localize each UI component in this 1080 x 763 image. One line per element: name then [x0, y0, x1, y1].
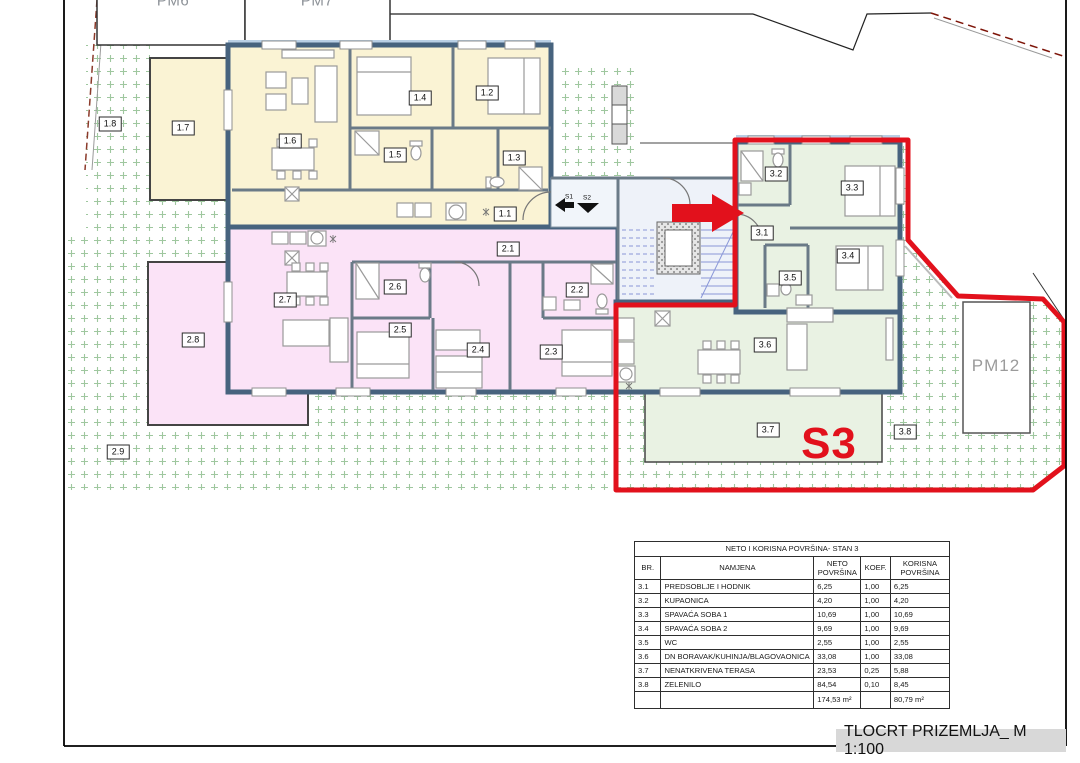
room-label-3.7: 3.7 — [757, 423, 780, 438]
room-label-1.4: 1.4 — [409, 91, 432, 106]
table-row-3.7: 3.7NENATKRIVENA TERASA23,530,255,88 — [635, 664, 950, 678]
cell-3.7-br: 3.7 — [635, 664, 661, 678]
room-label-1.7: 1.7 — [172, 121, 195, 136]
room-label-2.1: 2.1 — [497, 242, 520, 257]
cell-3.8-koef: 0,10 — [861, 678, 890, 692]
cell-3.3-korisna: 10,69 — [890, 608, 949, 622]
col-header-koef: KOEF. — [861, 557, 890, 580]
cell-3.6-neto: 33,08 — [814, 650, 861, 664]
table-row-3.3: 3.3SPAVAĆA SOBA 110,691,0010,69 — [635, 608, 950, 622]
cell-3.1-name: PREDSOBLJE I HODNIK — [661, 580, 814, 594]
cell-3.5-korisna: 2,55 — [890, 636, 949, 650]
entrance-arrow-s2-label: S2 — [583, 195, 591, 202]
parking-stalls — [97, 0, 390, 45]
cell-3.1-neto: 6,25 — [814, 580, 861, 594]
cell-3.4-korisna: 9,69 — [890, 622, 949, 636]
cell-3.6-name: DN BORAVAK/KUHINJA/BLAGOVAONICA — [661, 650, 814, 664]
room-label-2.3: 2.3 — [540, 345, 563, 360]
cell-3.8-name: ZELENILO — [661, 678, 814, 692]
cell-3.2-br: 3.2 — [635, 594, 661, 608]
planter — [612, 86, 627, 144]
cell-3.7-korisna: 5,88 — [890, 664, 949, 678]
col-header-br: BR. — [635, 557, 661, 580]
cell-3.5-br: 3.5 — [635, 636, 661, 650]
room-label-3.6: 3.6 — [754, 338, 777, 353]
col-header-neto: NETO POVRŠINA — [814, 557, 861, 580]
room-label-3.8: 3.8 — [894, 425, 917, 440]
cell-3.6-koef: 1,00 — [861, 650, 890, 664]
room-label-3.1: 3.1 — [751, 226, 774, 241]
col-header-korisna: KORISNA POVRŠINA — [890, 557, 949, 580]
col-header-namjena: NAMJENA — [661, 557, 814, 580]
cell-3.2-neto: 4,20 — [814, 594, 861, 608]
table-row-3.4: 3.4SPAVAĆA SOBA 29,691,009,69 — [635, 622, 950, 636]
room-label-2.4: 2.4 — [467, 343, 490, 358]
table-row-3.1: 3.1PREDSOBLJE I HODNIK6,251,006,25 — [635, 580, 950, 594]
room-label-3.2: 3.2 — [765, 167, 788, 182]
cell-3.4-name: SPAVAĆA SOBA 2 — [661, 622, 814, 636]
cell-3.7-name: NENATKRIVENA TERASA — [661, 664, 814, 678]
room-label-1.1: 1.1 — [494, 207, 517, 222]
cell-3.5-name: WC — [661, 636, 814, 650]
pm12-label: PM12 — [972, 356, 1020, 376]
room-label-1.6: 1.6 — [279, 134, 302, 149]
cell-3.3-koef: 1,00 — [861, 608, 890, 622]
table-row-3.8: 3.8ZELENILO84,540,108,45 — [635, 678, 950, 692]
room-label-3.3: 3.3 — [841, 181, 864, 196]
cell-3.3-br: 3.3 — [635, 608, 661, 622]
cell-3.8-br: 3.8 — [635, 678, 661, 692]
cell-3.6-korisna: 33,08 — [890, 650, 949, 664]
cell-3.4-br: 3.4 — [635, 622, 661, 636]
table-row-3.5: 3.5WC2,551,002,55 — [635, 636, 950, 650]
cell-3.2-korisna: 4,20 — [890, 594, 949, 608]
room-label-2.2: 2.2 — [566, 283, 589, 298]
cell-3.2-name: KUPAONICA — [661, 594, 814, 608]
cell-3.4-neto: 9,69 — [814, 622, 861, 636]
cell-3.7-neto: 23,53 — [814, 664, 861, 678]
cell-3.5-neto: 2,55 — [814, 636, 861, 650]
room-label-3.5: 3.5 — [779, 271, 802, 286]
cell-3.8-neto: 84,54 — [814, 678, 861, 692]
room-label-1.5: 1.5 — [384, 148, 407, 163]
cell-3.7-koef: 0,25 — [861, 664, 890, 678]
entrance-arrow-s1-label: S1 — [565, 194, 573, 201]
table-total-row: 174,53 m² 80,79 m² — [635, 692, 950, 709]
cell-3.8-korisna: 8,45 — [890, 678, 949, 692]
cell-3.1-br: 3.1 — [635, 580, 661, 594]
floor-plan-page: 1.11.21.31.41.51.61.71.82.12.22.32.42.52… — [0, 0, 1080, 763]
room-label-2.9: 2.9 — [107, 445, 130, 460]
total-korisna: 80,79 m² — [890, 692, 949, 709]
area-table-title: NETO I KORISNA POVRŠINA- STAN 3 — [635, 542, 950, 557]
room-label-2.8: 2.8 — [182, 333, 205, 348]
room-label-2.6: 2.6 — [384, 280, 407, 295]
room-label-1.8: 1.8 — [99, 117, 122, 132]
cell-3.1-korisna: 6,25 — [890, 580, 949, 594]
room-label-1.2: 1.2 — [476, 86, 499, 101]
room-label-1.3: 1.3 — [503, 151, 526, 166]
area-table: NETO I KORISNA POVRŠINA- STAN 3 BR. NAMJ… — [634, 541, 950, 709]
total-neto: 174,53 m² — [814, 692, 861, 709]
table-row-3.6: 3.6DN BORAVAK/KUHINJA/BLAGOVAONICA33,081… — [635, 650, 950, 664]
s3-unit-label: S3 — [801, 419, 857, 469]
cell-3.5-koef: 1,00 — [861, 636, 890, 650]
pm6-label: PM6 — [157, 0, 189, 10]
cell-3.2-koef: 1,00 — [861, 594, 890, 608]
room-label-2.5: 2.5 — [389, 323, 412, 338]
cell-3.6-br: 3.6 — [635, 650, 661, 664]
table-row-3.2: 3.2KUPAONICA4,201,004,20 — [635, 594, 950, 608]
cell-3.3-name: SPAVAĆA SOBA 1 — [661, 608, 814, 622]
drawing-title: TLOCRT PRIZEMLJA_ M 1:100 — [836, 729, 1066, 752]
room-label-2.7: 2.7 — [274, 293, 297, 308]
cell-3.4-koef: 1,00 — [861, 622, 890, 636]
room-label-3.4: 3.4 — [837, 249, 860, 264]
cell-3.3-neto: 10,69 — [814, 608, 861, 622]
cell-3.1-koef: 1,00 — [861, 580, 890, 594]
pm7-label: PM7 — [301, 0, 333, 10]
